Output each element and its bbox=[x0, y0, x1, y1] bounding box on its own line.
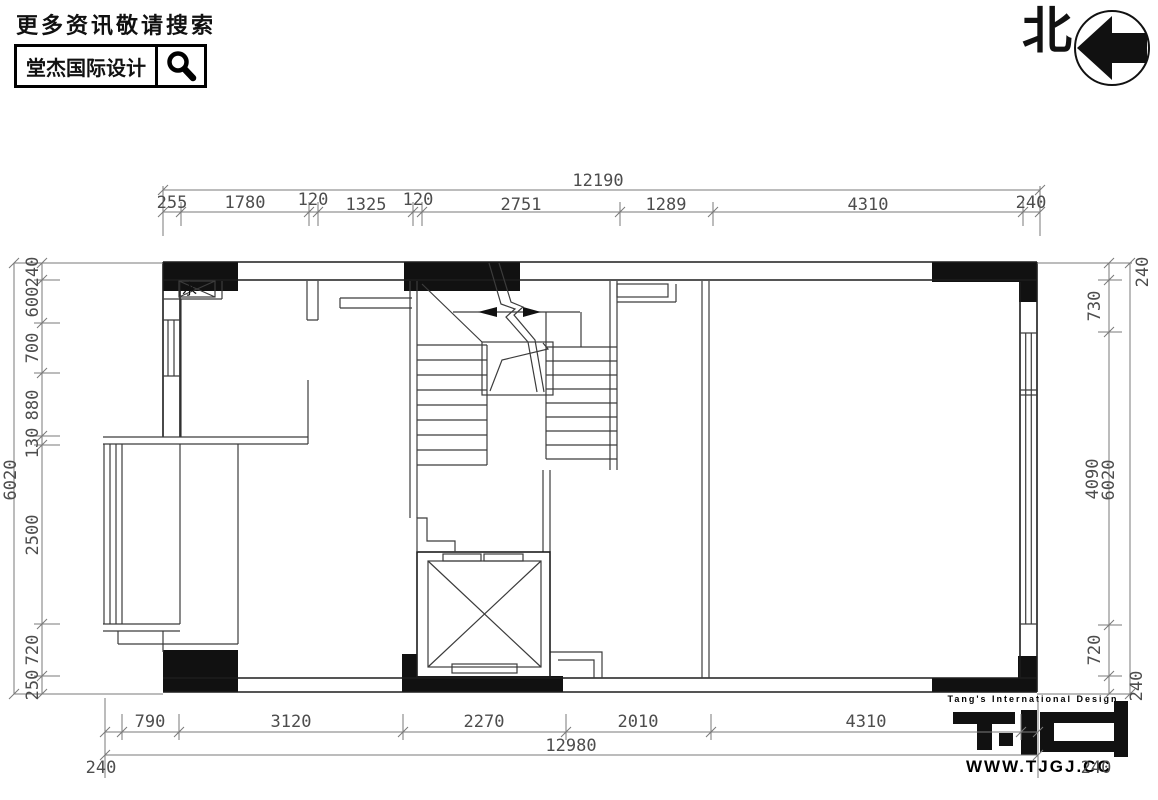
dim-left-seg: 240 bbox=[23, 257, 43, 288]
dim-top-seg: 240 bbox=[1016, 193, 1047, 213]
interior-partitions bbox=[163, 281, 709, 678]
dim-top-seg: 4310 bbox=[848, 195, 889, 215]
dim-left-seg: 2500 bbox=[23, 515, 43, 556]
north-arrow-icon bbox=[1070, 4, 1158, 94]
dim-right-total: 6020 bbox=[1099, 460, 1119, 501]
dim-bottom-seg: 790 bbox=[135, 712, 166, 732]
staircase bbox=[410, 263, 617, 678]
search-icon bbox=[158, 47, 204, 85]
dim-bottom-total: 12980 bbox=[545, 736, 596, 756]
water-meter-label: 水 bbox=[182, 280, 197, 298]
dimension-right: 6020 240 730 4090 720 240 bbox=[1037, 257, 1153, 702]
north-label: 北 bbox=[1022, 6, 1072, 56]
wall-blocks bbox=[163, 262, 1037, 692]
dim-bottom-seg: 4310 bbox=[846, 712, 887, 732]
dim-top-seg: 120 bbox=[298, 190, 329, 210]
dim-top-seg: 255 bbox=[157, 193, 188, 213]
dim-bottom-seg: 3120 bbox=[271, 712, 312, 732]
dim-bottom-seg: 2270 bbox=[464, 712, 505, 732]
dim-left-seg: 130 bbox=[23, 428, 43, 459]
dim-right-seg: 720 bbox=[1085, 635, 1105, 666]
floor-plan-sheet: 更多资讯敬请搜索 堂杰国际设计 北 Tang's International D… bbox=[0, 0, 1158, 800]
dim-top-seg: 1325 bbox=[346, 195, 387, 215]
dimension-left: 6020 240 600 700 880 130 2500 720 250 bbox=[1, 257, 163, 701]
outer-walls bbox=[163, 262, 1037, 692]
dim-left-total: 6020 bbox=[1, 460, 21, 501]
dim-top-seg: 1289 bbox=[646, 195, 687, 215]
dim-top-seg: 120 bbox=[403, 190, 434, 210]
stair-break-arrow-left bbox=[478, 307, 497, 317]
dim-left-seg: 250 bbox=[23, 670, 43, 701]
dim-top-seg: 2751 bbox=[501, 195, 542, 215]
stair-break-arrow-right bbox=[523, 307, 541, 317]
floor-plan-drawing: 水 12190 255 1780 120 1325 120 2751 1289 … bbox=[0, 0, 1158, 800]
dim-top-seg: 1780 bbox=[225, 193, 266, 213]
elevator-shaft bbox=[417, 518, 550, 677]
left-bay-and-windows bbox=[103, 320, 1037, 652]
dim-top-total: 12190 bbox=[572, 171, 623, 191]
dim-right-seg: 730 bbox=[1085, 291, 1105, 322]
dim-left-seg: 700 bbox=[23, 333, 43, 364]
dim-left-seg: 720 bbox=[23, 635, 43, 666]
dim-left-seg: 600 bbox=[23, 287, 43, 318]
tid-logo bbox=[945, 695, 1155, 765]
dim-bottom-seg: 2010 bbox=[618, 712, 659, 732]
dim-right-seg: 240 bbox=[1133, 257, 1153, 288]
tagline-text: 更多资讯敬请搜索 bbox=[16, 8, 216, 40]
logo-website: WWW.TJGJ.CC bbox=[966, 757, 1112, 777]
dim-right-seg: 4090 bbox=[1083, 459, 1103, 500]
dimension-top: 12190 255 1780 120 1325 120 2751 1289 43… bbox=[157, 171, 1047, 236]
brand-search-box: 堂杰国际设计 bbox=[14, 44, 207, 88]
dim-bottom-left-end: 240 bbox=[86, 758, 117, 778]
brand-name: 堂杰国际设计 bbox=[17, 47, 155, 85]
dim-left-seg: 880 bbox=[23, 390, 43, 421]
